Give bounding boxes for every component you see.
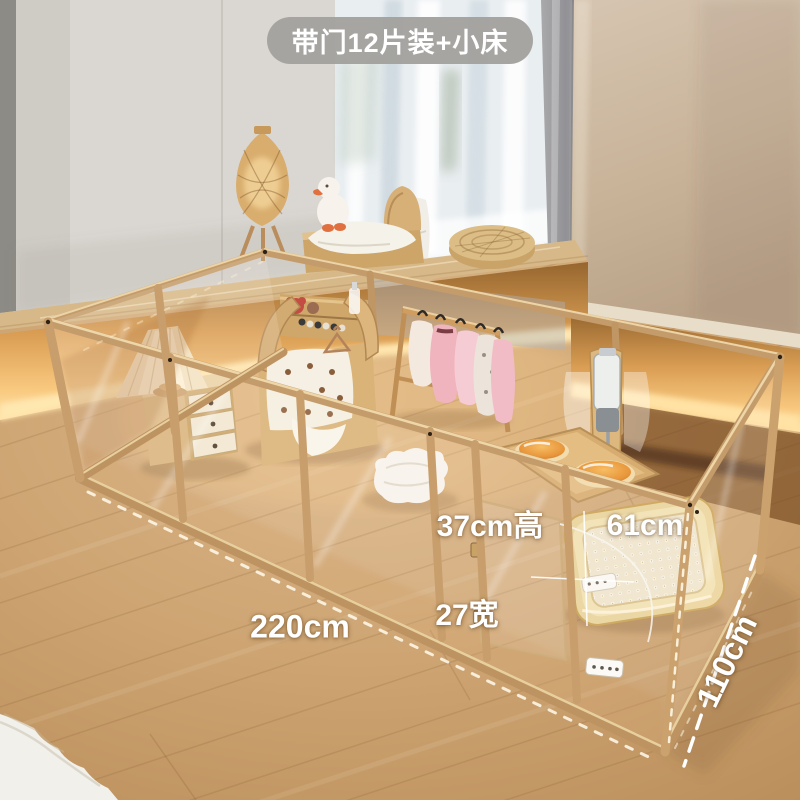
door-width-label: 27宽 — [435, 590, 498, 634]
door-latch — [585, 657, 624, 678]
beige-wall — [571, 0, 800, 338]
panel-width-label: 61cm — [607, 509, 684, 543]
rattan-cushion — [449, 225, 535, 269]
product-photo: 带门12片装+小床 37cm高 61cm 27宽 220cm 110cm — [0, 0, 800, 800]
length-label: 220cm — [250, 609, 350, 646]
product-badge: 带门12片装+小床 — [267, 17, 533, 64]
door-height-label: 37cm高 — [437, 501, 544, 545]
spray-bottle — [349, 288, 360, 314]
room-scene — [0, 0, 800, 800]
